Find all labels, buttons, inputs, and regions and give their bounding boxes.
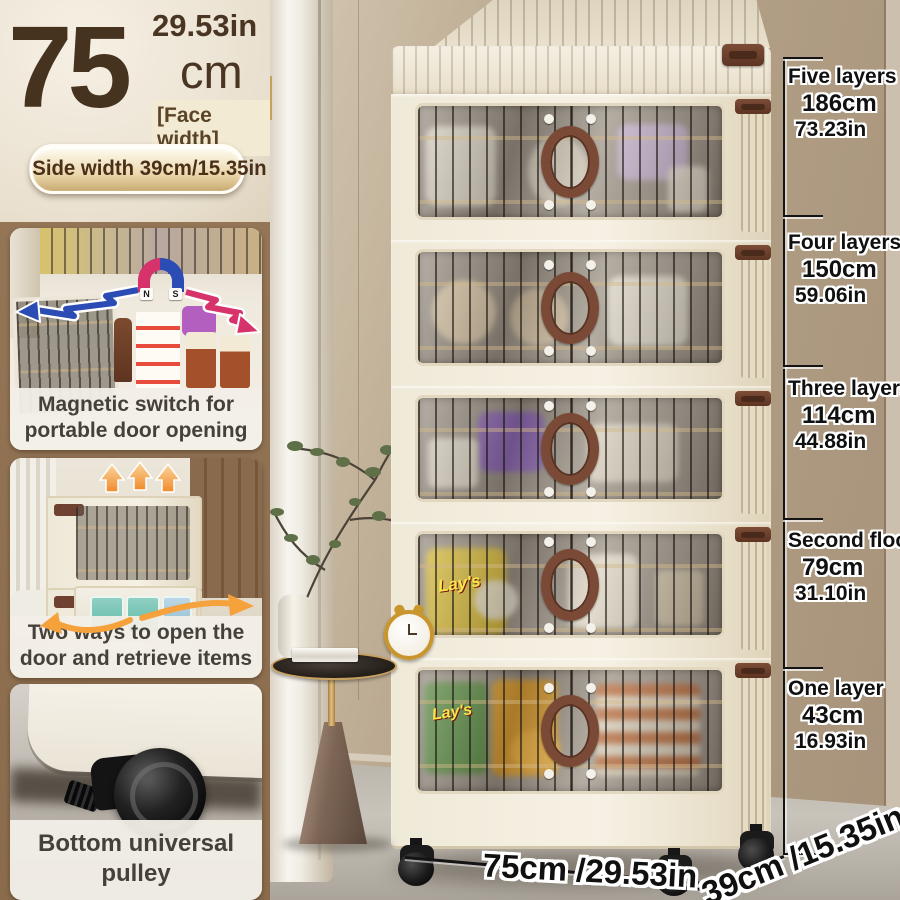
layer-cm: 79cm [802, 554, 900, 581]
side-vent-slats [741, 246, 767, 378]
height-annotation-one-layer: One layer 43cm 16.93in [788, 676, 900, 755]
magnet-icon: N S [138, 258, 184, 298]
dimension-tick [783, 215, 823, 217]
cabinet-tier-5: Lay's [391, 658, 771, 849]
cabinet-tier-3 [391, 386, 771, 525]
magnetic-field-arrows [10, 228, 262, 398]
cabinet-tier-1 [391, 94, 771, 243]
door-handle [534, 537, 606, 633]
feature-panel-two-ways: Two ways to open the door and retrieve i… [10, 458, 262, 678]
feature-panel-magnetic-switch: N S Magnetic switch for portable door op… [10, 228, 262, 450]
cabinet-tier-2 [391, 240, 771, 389]
layer-label: One layer [788, 676, 900, 702]
side-vent-slats [741, 392, 767, 514]
cabinet-tier-4: Lay's [391, 522, 771, 661]
side-handle [735, 391, 771, 406]
dimension-tick [783, 518, 823, 520]
layer-cm: 186cm [802, 90, 900, 117]
layer-inches: 16.93in [795, 729, 900, 755]
panel3-caption: Bottom universal pulley [10, 820, 262, 900]
dimension-tick [783, 667, 823, 669]
handle-ring [541, 413, 599, 485]
door-handle [534, 114, 606, 210]
height-annotation-four-layers: Four layers 150cm 59.06in [788, 230, 900, 309]
layer-inches: 59.06in [795, 283, 900, 309]
side-vent-slats [741, 100, 767, 232]
side-handle [735, 99, 771, 114]
dimension-tick [783, 365, 823, 367]
dimension-line-vertical [783, 57, 785, 855]
caption-line: portable door opening [10, 418, 262, 444]
face-width-unit: cm [180, 44, 243, 99]
face-width-value: 75 [8, 12, 127, 122]
height-annotation-three-layers: Three layers 114cm 44.88in [788, 376, 900, 455]
lid-handle [722, 44, 764, 66]
open-direction-arrows [10, 458, 262, 648]
door-window [415, 395, 725, 502]
side-handle [735, 663, 771, 678]
layer-inches: 44.88in [795, 429, 900, 455]
handle-ring [541, 272, 599, 344]
layer-cm: 43cm [802, 702, 900, 729]
door-window: Lay's [415, 531, 725, 638]
door-handle [534, 401, 606, 497]
magnet-pole-s: S [169, 288, 182, 300]
face-width-inches: 29.53in [152, 8, 257, 44]
feature-panel-pulley: Bottom universal pulley [10, 684, 262, 900]
dimension-tick [783, 57, 823, 59]
height-annotation-second-floor: Second floor 79cm 31.10in [788, 528, 900, 607]
door-window [415, 249, 725, 366]
side-handle [735, 245, 771, 260]
clock-hand [408, 633, 417, 635]
door-window: Lay's [415, 667, 725, 794]
layer-cm: 114cm [802, 402, 900, 429]
book [292, 648, 358, 662]
layer-label: Five layers [788, 64, 900, 90]
magnet-pole-n: N [140, 288, 153, 300]
layer-label: Second floor [788, 528, 900, 554]
alarm-clock [384, 610, 434, 660]
side-handle [735, 527, 771, 542]
caption-line: door and retrieve items [10, 646, 262, 672]
caption-line: Bottom universal pulley [10, 829, 262, 889]
cabinet-lid [391, 46, 771, 96]
layer-cm: 150cm [802, 256, 900, 283]
height-annotation-five-layers: Five layers 186cm 73.23in [788, 64, 900, 143]
product-image: Lay's Lay's [0, 0, 900, 900]
door-handle [534, 260, 606, 356]
handle-ring [541, 695, 599, 767]
side-vent-slats [741, 528, 767, 650]
door-handle [534, 683, 606, 779]
layer-inches: 31.10in [795, 581, 900, 607]
door-window [415, 103, 725, 220]
layer-label: Four layers [788, 230, 900, 256]
side-table-stem [328, 674, 335, 726]
handle-ring [541, 126, 599, 198]
side-width-pill: Side width 39cm/15.35in [29, 144, 244, 194]
handle-ring [541, 549, 599, 621]
side-vent-slats [741, 664, 767, 838]
layer-inches: 73.23in [795, 117, 900, 143]
layer-label: Three layers [788, 376, 900, 402]
